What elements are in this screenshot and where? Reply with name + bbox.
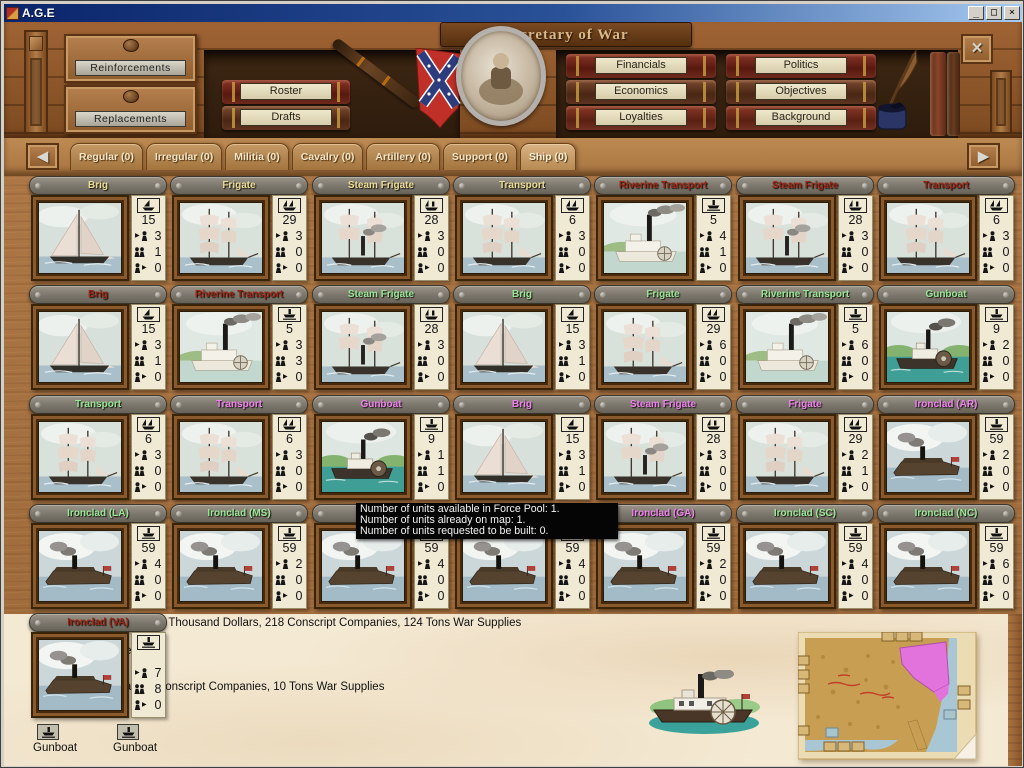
tab-militia-0[interactable]: Militia (0) bbox=[225, 143, 289, 170]
available-count: 3 bbox=[436, 338, 446, 352]
tab-ship-0[interactable]: Ship (0) bbox=[520, 143, 577, 170]
unit-picture-frame bbox=[596, 304, 694, 390]
unit-name: Brig bbox=[30, 286, 166, 304]
unit-picture-frame bbox=[31, 632, 129, 718]
unit-stats-column: 9 ▶2 0 ▶0 bbox=[979, 304, 1014, 390]
unit-card-brig[interactable]: Brig 15 ▶3 1 ▶0 bbox=[453, 395, 591, 500]
tab-artillery-0[interactable]: Artillery (0) bbox=[366, 143, 439, 170]
available-count: 4 bbox=[577, 557, 587, 571]
pool-count: 59 bbox=[273, 541, 306, 556]
pool-count: 5 bbox=[273, 322, 306, 337]
on-map-count: 1 bbox=[577, 354, 587, 368]
unit-picture-frame bbox=[172, 195, 270, 281]
requested-units-icon: ▶ bbox=[841, 482, 860, 492]
requested-units-icon: ▶ bbox=[982, 263, 1001, 273]
unit-name-plaque: Ironclad (AR) bbox=[877, 395, 1015, 414]
on-map-count: 0 bbox=[294, 573, 304, 587]
requested-count: 0 bbox=[436, 370, 446, 384]
window-close-button[interactable]: × bbox=[1004, 6, 1020, 20]
unit-picture bbox=[321, 421, 405, 493]
rivet-icon bbox=[438, 402, 444, 408]
mini-map[interactable] bbox=[798, 632, 980, 762]
unit-picture bbox=[38, 311, 122, 383]
unit-card-brig[interactable]: Brig 15 ▶3 1 ▶0 bbox=[29, 176, 167, 281]
on-map-count: 1 bbox=[153, 245, 163, 259]
unit-card-riverine-transport[interactable]: Riverine Transport 5 ▶3 3 ▶0 bbox=[170, 285, 308, 390]
tab-label: Cavalry (0) bbox=[301, 151, 355, 163]
unit-name-plaque: Steam Frigate bbox=[736, 176, 874, 195]
rivet-icon bbox=[883, 292, 889, 298]
tab-regular-0[interactable]: Regular (0) bbox=[70, 143, 143, 170]
on-map-units-icon bbox=[982, 356, 1001, 366]
available-count: 3 bbox=[294, 229, 304, 243]
unit-card-transport[interactable]: Transport 6 ▶3 0 ▶0 bbox=[877, 176, 1015, 281]
unit-picture-frame bbox=[879, 523, 977, 609]
total-cost-text: 5 Thousand Dollars, 218 Conscript Compan… bbox=[159, 617, 521, 629]
unit-name: Steam Frigate bbox=[595, 396, 731, 414]
rivet-icon bbox=[579, 402, 585, 408]
rivet-icon bbox=[176, 511, 182, 517]
unit-card-ironclad-la[interactable]: Ironclad (LA) 59 ▶4 0 ▶0 bbox=[29, 504, 167, 609]
requested-count: 0 bbox=[577, 261, 587, 275]
pool-count: 15 bbox=[556, 322, 589, 337]
unit-card-brig[interactable]: Brig 15 ▶3 1 ▶0 bbox=[453, 285, 591, 390]
available-units-icon: ▶ bbox=[699, 559, 718, 569]
unit-picture bbox=[603, 530, 687, 602]
drafts-button[interactable]: Drafts bbox=[240, 109, 332, 126]
rivet-icon bbox=[862, 402, 868, 408]
rivet-icon bbox=[155, 620, 161, 626]
requested-count: 0 bbox=[577, 370, 587, 384]
on-map-units-icon bbox=[275, 466, 294, 476]
unit-stats-column: 6 ▶3 0 ▶0 bbox=[131, 414, 166, 500]
sail-ship-icon bbox=[137, 198, 160, 213]
unit-name-plaque: Transport bbox=[170, 395, 308, 414]
unit-card-brig[interactable]: Brig 15 ▶3 1 ▶0 bbox=[29, 285, 167, 390]
on-map-units-icon bbox=[841, 466, 860, 476]
available-count: 2 bbox=[860, 448, 870, 462]
unit-name-plaque: Riverine Transport bbox=[594, 176, 732, 195]
pool-count: 28 bbox=[697, 432, 730, 447]
on-map-units-icon bbox=[841, 356, 860, 366]
unit-card-gunboat[interactable]: Gunboat 9 ▶1 1 ▶0 bbox=[312, 395, 450, 500]
pool-count: 59 bbox=[697, 541, 730, 556]
unit-name: Ironclad (VA) bbox=[30, 614, 166, 632]
on-map-count: 1 bbox=[153, 354, 163, 368]
rivet-icon bbox=[176, 183, 182, 189]
unit-name-plaque: Ironclad (SC) bbox=[736, 504, 874, 523]
unit-name: Ironclad (AR) bbox=[878, 396, 1014, 414]
available-units-icon: ▶ bbox=[982, 559, 1001, 569]
requested-count: 0 bbox=[1001, 261, 1011, 275]
on-map-units-icon bbox=[275, 575, 294, 585]
requested-count: 0 bbox=[153, 261, 163, 275]
available-units-icon: ▶ bbox=[982, 231, 1001, 241]
pool-count: 59 bbox=[839, 541, 872, 556]
unit-picture-frame bbox=[314, 304, 412, 390]
available-count: 4 bbox=[860, 557, 870, 571]
requested-count: 0 bbox=[436, 589, 446, 603]
book-spine: Financials bbox=[566, 54, 716, 78]
rivet-icon bbox=[720, 183, 726, 189]
unit-stats-column: 5 ▶3 3 ▶0 bbox=[272, 304, 307, 390]
on-map-count: 1 bbox=[718, 245, 728, 259]
scroll-slot-right[interactable] bbox=[990, 70, 1012, 134]
on-map-units-icon bbox=[417, 466, 436, 476]
unit-name-plaque: Ironclad (LA) bbox=[29, 504, 167, 523]
on-map-units-icon bbox=[558, 575, 577, 585]
unit-name-plaque: Riverine Transport bbox=[736, 285, 874, 304]
on-map-count: 0 bbox=[718, 573, 728, 587]
gunboat-element-icon bbox=[37, 724, 59, 740]
requested-count: 0 bbox=[1001, 370, 1011, 384]
unit-picture-frame bbox=[172, 414, 270, 500]
unit-picture-frame bbox=[879, 414, 977, 500]
unit-picture-frame bbox=[31, 195, 129, 281]
available-count: 6 bbox=[860, 338, 870, 352]
book-spine bbox=[947, 52, 960, 136]
unit-picture bbox=[321, 202, 405, 274]
unit-name: Transport bbox=[454, 177, 590, 195]
pool-count: 6 bbox=[132, 432, 165, 447]
unit-picture-frame bbox=[172, 304, 270, 390]
available-units-icon: ▶ bbox=[417, 450, 436, 460]
available-units-icon: ▶ bbox=[699, 450, 718, 460]
panel-close-button[interactable]: × bbox=[961, 34, 993, 64]
roster-button[interactable]: Roster bbox=[240, 83, 332, 100]
unit-picture bbox=[745, 202, 829, 274]
unit-name-plaque: Transport bbox=[877, 176, 1015, 195]
politics-button[interactable]: Politics bbox=[755, 57, 847, 74]
tab-nav-left-arrow-icon[interactable]: ◀ bbox=[26, 143, 59, 170]
requested-units-icon: ▶ bbox=[275, 372, 294, 382]
rivet-icon bbox=[155, 292, 161, 298]
unit-picture bbox=[603, 202, 687, 274]
requested-count: 0 bbox=[860, 589, 870, 603]
unit-name: Transport bbox=[878, 177, 1014, 195]
full-rigged-ship-icon bbox=[702, 307, 725, 322]
tab-label: Support (0) bbox=[452, 151, 508, 163]
unit-picture bbox=[462, 421, 546, 493]
requested-count: 0 bbox=[436, 480, 446, 494]
on-map-count: 3 bbox=[294, 354, 304, 368]
on-map-count: 0 bbox=[1001, 573, 1011, 587]
unit-name-plaque: Brig bbox=[29, 285, 167, 304]
force-pool-tooltip: Number of units available in Force Pool:… bbox=[356, 503, 618, 539]
requested-units-icon: ▶ bbox=[841, 372, 860, 382]
tab-label: Regular (0) bbox=[79, 151, 134, 163]
unit-card-transport[interactable]: Transport 6 ▶3 0 ▶0 bbox=[29, 395, 167, 500]
unit-card-gunboat[interactable]: Gunboat 9 ▶2 0 ▶0 bbox=[877, 285, 1015, 390]
economics-button[interactable]: Economics bbox=[595, 83, 687, 100]
pool-count: 6 bbox=[980, 213, 1013, 228]
requested-units-icon: ▶ bbox=[982, 591, 1001, 601]
unit-picture bbox=[179, 530, 263, 602]
unit-card-riverine-transport[interactable]: Riverine Transport 5 ▶6 0 ▶0 bbox=[736, 285, 874, 390]
on-map-units-icon bbox=[417, 247, 436, 257]
pool-count: 28 bbox=[839, 213, 872, 228]
steam-ship-icon bbox=[844, 307, 867, 322]
rivet-icon bbox=[720, 402, 726, 408]
on-map-count: 1 bbox=[436, 464, 446, 478]
steam-sail-ship-icon bbox=[844, 198, 867, 213]
unit-card-frigate[interactable]: Frigate 29 ▶3 0 ▶0 bbox=[170, 176, 308, 281]
unit-picture-frame bbox=[31, 304, 129, 390]
tab-support-0[interactable]: Support (0) bbox=[443, 143, 517, 170]
unit-stats-column: 59 ▶2 0 ▶0 bbox=[696, 523, 731, 609]
unit-stats-column: 29 ▶3 0 ▶0 bbox=[272, 195, 307, 281]
reinforcements-label: Reinforcements bbox=[75, 60, 186, 76]
steam-ship-icon bbox=[702, 198, 725, 213]
scroll-handle-left[interactable] bbox=[24, 30, 48, 134]
rivet-icon bbox=[742, 183, 748, 189]
unit-stats-column: 59 ▶4 0 ▶0 bbox=[131, 523, 166, 609]
available-count: 3 bbox=[294, 338, 304, 352]
available-units-icon: ▶ bbox=[558, 559, 577, 569]
available-count: 7 bbox=[153, 666, 163, 680]
rivet-icon bbox=[35, 292, 41, 298]
available-units-icon: ▶ bbox=[275, 450, 294, 460]
unit-name: Ironclad (MS) bbox=[171, 505, 307, 523]
rivet-icon bbox=[176, 292, 182, 298]
available-count: 3 bbox=[577, 448, 587, 462]
requested-count: 0 bbox=[294, 261, 304, 275]
unit-name-plaque: Ironclad (NC) bbox=[877, 504, 1015, 523]
on-map-units-icon bbox=[134, 356, 153, 366]
unit-name: Ironclad (NC) bbox=[878, 505, 1014, 523]
unit-name: Steam Frigate bbox=[313, 177, 449, 195]
pool-count: 29 bbox=[697, 322, 730, 337]
on-map-units-icon bbox=[134, 247, 153, 257]
on-map-count: 0 bbox=[1001, 354, 1011, 368]
unit-name-plaque: Frigate bbox=[170, 176, 308, 195]
unit-name-plaque: Steam Frigate bbox=[594, 395, 732, 414]
on-map-count: 1 bbox=[860, 464, 870, 478]
unit-card-ironclad-va[interactable]: Ironclad (VA) ▶7 8 ▶0 bbox=[29, 613, 167, 718]
sail-ship-icon bbox=[137, 307, 160, 322]
unit-stats-column: 5 ▶6 0 ▶0 bbox=[838, 304, 873, 390]
unit-stats-column: 28 ▶3 0 ▶0 bbox=[838, 195, 873, 281]
rivet-icon bbox=[318, 511, 324, 517]
unit-stats-column: 28 ▶3 0 ▶0 bbox=[414, 304, 449, 390]
on-map-units-icon bbox=[982, 466, 1001, 476]
unit-name-plaque: Ironclad (MS) bbox=[170, 504, 308, 523]
unit-picture bbox=[886, 202, 970, 274]
requested-units-icon: ▶ bbox=[841, 591, 860, 601]
unit-picture bbox=[462, 202, 546, 274]
requested-units-icon: ▶ bbox=[275, 482, 294, 492]
unit-name: Ironclad (SC) bbox=[737, 505, 873, 523]
steam-ship-icon bbox=[985, 417, 1008, 432]
right-books-column-1: Financials Economics Loyalties bbox=[566, 54, 716, 130]
available-units-icon: ▶ bbox=[134, 668, 153, 678]
maximize-button[interactable]: □ bbox=[986, 6, 1002, 20]
rivet-icon bbox=[883, 511, 889, 517]
available-units-icon: ▶ bbox=[417, 231, 436, 241]
unit-stats-column: 6 ▶3 0 ▶0 bbox=[272, 414, 307, 500]
unit-picture bbox=[38, 530, 122, 602]
minimize-button[interactable]: _ bbox=[968, 6, 984, 20]
unit-picture bbox=[603, 421, 687, 493]
drawer-knob-icon bbox=[123, 90, 139, 103]
requested-units-icon: ▶ bbox=[417, 482, 436, 492]
unit-card-steam-frigate[interactable]: Steam Frigate 28 ▶3 0 ▶0 bbox=[312, 176, 450, 281]
available-units-icon: ▶ bbox=[558, 340, 577, 350]
book-spine: Background bbox=[726, 106, 876, 130]
requested-count: 0 bbox=[153, 480, 163, 494]
tabs: Regular (0)Irregular (0)Militia (0)Caval… bbox=[70, 143, 576, 170]
unit-stats-column: 59 ▶6 0 ▶0 bbox=[979, 523, 1014, 609]
sail-ship-icon bbox=[561, 307, 584, 322]
unit-name: Transport bbox=[30, 396, 166, 414]
pool-count: 15 bbox=[132, 322, 165, 337]
rivet-icon bbox=[600, 183, 606, 189]
requested-units-icon: ▶ bbox=[982, 482, 1001, 492]
on-map-count: 0 bbox=[718, 464, 728, 478]
unit-name: Riverine Transport bbox=[171, 286, 307, 304]
tab-nav-right-arrow-icon[interactable]: ▶ bbox=[967, 143, 1000, 170]
reinforcements-button[interactable]: Reinforcements bbox=[64, 34, 197, 83]
unit-picture bbox=[38, 639, 122, 711]
on-map-count: 0 bbox=[294, 245, 304, 259]
on-map-count: 0 bbox=[577, 573, 587, 587]
unit-name-plaque: Frigate bbox=[594, 285, 732, 304]
rivet-icon bbox=[155, 402, 161, 408]
unit-card-ironclad-sc[interactable]: Ironclad (SC) 59 ▶4 0 ▶0 bbox=[736, 504, 874, 609]
requested-count: 0 bbox=[718, 480, 728, 494]
rivet-icon bbox=[1003, 183, 1009, 189]
unit-name-plaque: Transport bbox=[29, 395, 167, 414]
available-units-icon: ▶ bbox=[275, 340, 294, 350]
pool-count: 28 bbox=[415, 213, 448, 228]
tab-irregular-0[interactable]: Irregular (0) bbox=[146, 143, 222, 170]
loyalties-button[interactable]: Loyalties bbox=[595, 109, 687, 126]
unit-card-transport[interactable]: Transport 6 ▶3 0 ▶0 bbox=[170, 395, 308, 500]
unit-picture bbox=[745, 421, 829, 493]
unit-card-frigate[interactable]: Frigate 29 ▶6 0 ▶0 bbox=[594, 285, 732, 390]
tab-cavalry-0[interactable]: Cavalry (0) bbox=[292, 143, 364, 170]
on-map-units-icon bbox=[134, 466, 153, 476]
unit-card-steam-frigate[interactable]: Steam Frigate 28 ▶3 0 ▶0 bbox=[594, 395, 732, 500]
unit-name-plaque: Steam Frigate bbox=[312, 285, 450, 304]
pool-count: 5 bbox=[839, 322, 872, 337]
requested-count: 0 bbox=[153, 698, 163, 712]
unit-name: Gunboat bbox=[313, 396, 449, 414]
unit-card-riverine-transport[interactable]: Riverine Transport 5 ▶4 1 ▶0 bbox=[594, 176, 732, 281]
unit-name: Brig bbox=[454, 286, 590, 304]
unit-picture-frame bbox=[596, 195, 694, 281]
unit-card-ironclad-ar[interactable]: Ironclad (AR) 59 ▶2 0 ▶0 bbox=[877, 395, 1015, 500]
quill-inkwell bbox=[870, 50, 926, 134]
unit-stats-column: 28 ▶3 0 ▶0 bbox=[696, 414, 731, 500]
window-title: A.G.E bbox=[22, 6, 55, 20]
requested-units-icon: ▶ bbox=[558, 263, 577, 273]
requested-count: 0 bbox=[860, 261, 870, 275]
element-item[interactable]: Gunboat bbox=[33, 724, 103, 754]
requested-count: 0 bbox=[577, 589, 587, 603]
tab-label: Ship (0) bbox=[529, 151, 568, 163]
on-map-units-icon bbox=[982, 247, 1001, 257]
steam-ship-icon bbox=[702, 526, 725, 541]
requested-count: 0 bbox=[294, 480, 304, 494]
rivet-icon bbox=[318, 292, 324, 298]
background-button[interactable]: Background bbox=[755, 109, 847, 126]
rivet-icon bbox=[720, 511, 726, 517]
requested-units-icon: ▶ bbox=[134, 482, 153, 492]
requested-count: 0 bbox=[1001, 589, 1011, 603]
drawer-knob-icon bbox=[123, 39, 139, 52]
available-units-icon: ▶ bbox=[134, 231, 153, 241]
unit-picture-frame bbox=[738, 523, 836, 609]
objectives-button[interactable]: Objectives bbox=[755, 83, 847, 100]
rivet-icon bbox=[720, 292, 726, 298]
rivet-icon bbox=[600, 292, 606, 298]
unit-card-transport[interactable]: Transport 6 ▶3 0 ▶0 bbox=[453, 176, 591, 281]
on-map-units-icon bbox=[699, 247, 718, 257]
on-map-units-icon bbox=[558, 247, 577, 257]
on-map-count: 1 bbox=[577, 464, 587, 478]
available-count: 2 bbox=[294, 557, 304, 571]
unit-picture-frame bbox=[31, 523, 129, 609]
unit-card-steam-frigate[interactable]: Steam Frigate 28 ▶3 0 ▶0 bbox=[736, 176, 874, 281]
unit-stats-column: 59 ▶4 0 ▶0 bbox=[838, 523, 873, 609]
unit-card-steam-frigate[interactable]: Steam Frigate 28 ▶3 0 ▶0 bbox=[312, 285, 450, 390]
requested-count: 0 bbox=[718, 370, 728, 384]
replacements-button[interactable]: Replacements bbox=[64, 85, 197, 134]
unit-picture bbox=[745, 530, 829, 602]
rivet-icon bbox=[296, 292, 302, 298]
unit-name-plaque: Gunboat bbox=[877, 285, 1015, 304]
unit-name: Frigate bbox=[737, 396, 873, 414]
available-count: 3 bbox=[294, 448, 304, 462]
pool-count: 59 bbox=[980, 541, 1013, 556]
rivet-icon bbox=[296, 402, 302, 408]
pool-count: 28 bbox=[415, 322, 448, 337]
available-count: 2 bbox=[1001, 338, 1011, 352]
unit-card-ironclad-nc[interactable]: Ironclad (NC) 59 ▶6 0 ▶0 bbox=[877, 504, 1015, 609]
rivet-icon bbox=[862, 183, 868, 189]
available-count: 3 bbox=[577, 338, 587, 352]
rivet-icon bbox=[438, 292, 444, 298]
book-spine: Politics bbox=[726, 54, 876, 78]
on-map-units-icon bbox=[275, 247, 294, 257]
financials-button[interactable]: Financials bbox=[595, 57, 687, 74]
unit-card-ironclad-ms[interactable]: Ironclad (MS) 59 ▶2 0 ▶0 bbox=[170, 504, 308, 609]
full-rigged-ship-icon bbox=[844, 417, 867, 432]
requested-count: 0 bbox=[294, 589, 304, 603]
rivet-icon bbox=[35, 511, 41, 517]
element-item[interactable]: Gunboat bbox=[113, 724, 183, 754]
available-count: 4 bbox=[436, 557, 446, 571]
pool-count bbox=[132, 650, 165, 665]
on-map-units-icon bbox=[841, 575, 860, 585]
rivet-icon bbox=[579, 183, 585, 189]
requested-units-icon: ▶ bbox=[134, 591, 153, 601]
book-spine: Objectives bbox=[726, 80, 876, 104]
requested-count: 0 bbox=[860, 480, 870, 494]
unit-stats-column: 15 ▶3 1 ▶0 bbox=[555, 414, 590, 500]
on-map-units-icon bbox=[275, 356, 294, 366]
unit-name-plaque: Steam Frigate bbox=[312, 176, 450, 195]
steamboat-illustration bbox=[646, 670, 764, 736]
unit-picture-frame bbox=[879, 195, 977, 281]
requested-count: 0 bbox=[718, 261, 728, 275]
available-units-icon: ▶ bbox=[134, 340, 153, 350]
requested-units-icon: ▶ bbox=[417, 372, 436, 382]
available-units-icon: ▶ bbox=[275, 231, 294, 241]
unit-card-frigate[interactable]: Frigate 29 ▶2 1 ▶0 bbox=[736, 395, 874, 500]
available-units-icon: ▶ bbox=[558, 450, 577, 460]
